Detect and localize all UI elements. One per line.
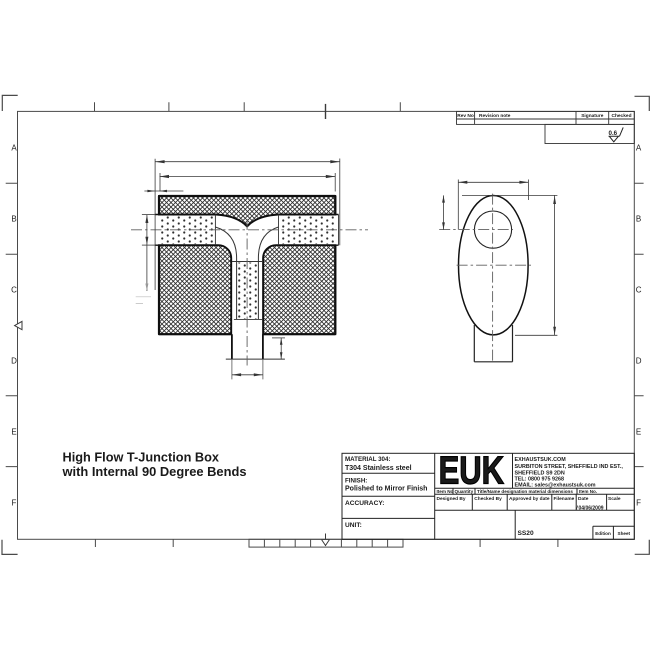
- svg-text:MATERIAL 304:: MATERIAL 304:: [345, 456, 391, 463]
- svg-text:High Flow T-Junction Box: High Flow T-Junction Box: [63, 449, 220, 464]
- svg-text:Polished to Mirror Finish: Polished to Mirror Finish: [345, 486, 427, 493]
- svg-text:EXHAUSTSUK.COM: EXHAUSTSUK.COM: [515, 457, 567, 463]
- svg-text:FINISH:: FINISH:: [345, 478, 367, 485]
- svg-text:D: D: [636, 357, 642, 366]
- svg-text:Signature: Signature: [581, 113, 603, 119]
- svg-text:A: A: [636, 144, 642, 153]
- svg-text:F: F: [636, 499, 641, 508]
- svg-text:E: E: [636, 428, 641, 437]
- svg-text:EUK: EUK: [439, 449, 505, 492]
- svg-text:Title/Name designation materia: Title/Name designation material dimensio…: [477, 489, 573, 494]
- svg-text:D: D: [11, 357, 17, 366]
- svg-text:Sheet: Sheet: [618, 531, 631, 536]
- svg-text:04/06/2009: 04/06/2009: [579, 506, 604, 512]
- svg-text:C: C: [636, 286, 642, 295]
- svg-text:Filename: Filename: [554, 496, 575, 502]
- svg-text:Checked By: Checked By: [474, 496, 502, 502]
- svg-text:Designed By: Designed By: [437, 496, 466, 502]
- svg-text:Checked: Checked: [612, 113, 632, 119]
- svg-text:C: C: [11, 286, 17, 295]
- svg-text:Revision note: Revision note: [479, 113, 511, 119]
- svg-text:UNIT:: UNIT:: [345, 522, 362, 529]
- svg-text:Item No.: Item No.: [579, 489, 597, 494]
- svg-text:A: A: [11, 144, 17, 153]
- svg-text:Date: Date: [578, 496, 589, 502]
- svg-text:T304 Stainless steel: T304 Stainless steel: [345, 465, 412, 472]
- svg-text:Edition: Edition: [595, 531, 611, 536]
- svg-text:EMAIL: sales@exhaustsuk.com: EMAIL: sales@exhaustsuk.com: [515, 483, 596, 489]
- svg-text:E: E: [11, 428, 16, 437]
- svg-text:Scale: Scale: [608, 496, 621, 502]
- svg-text:SURBITON STREET, SHEFFIELD IND: SURBITON STREET, SHEFFIELD IND EST.,: [515, 464, 624, 470]
- svg-text:Quantity: Quantity: [455, 489, 474, 494]
- svg-text:Rev No: Rev No: [457, 113, 474, 119]
- svg-text:F: F: [12, 499, 17, 508]
- svg-text:B: B: [11, 215, 16, 224]
- svg-text:SS20: SS20: [518, 530, 534, 537]
- svg-text:ACCURACY:: ACCURACY:: [345, 500, 384, 507]
- svg-text:B: B: [636, 215, 641, 224]
- svg-text:TEL: 0800 975 9268: TEL: 0800 975 9268: [515, 476, 564, 482]
- svg-text:with Internal 90 Degree Bends: with Internal 90 Degree Bends: [62, 464, 247, 479]
- svg-text:Item No: Item No: [437, 489, 454, 494]
- svg-text:Approved by date: Approved by date: [509, 496, 550, 502]
